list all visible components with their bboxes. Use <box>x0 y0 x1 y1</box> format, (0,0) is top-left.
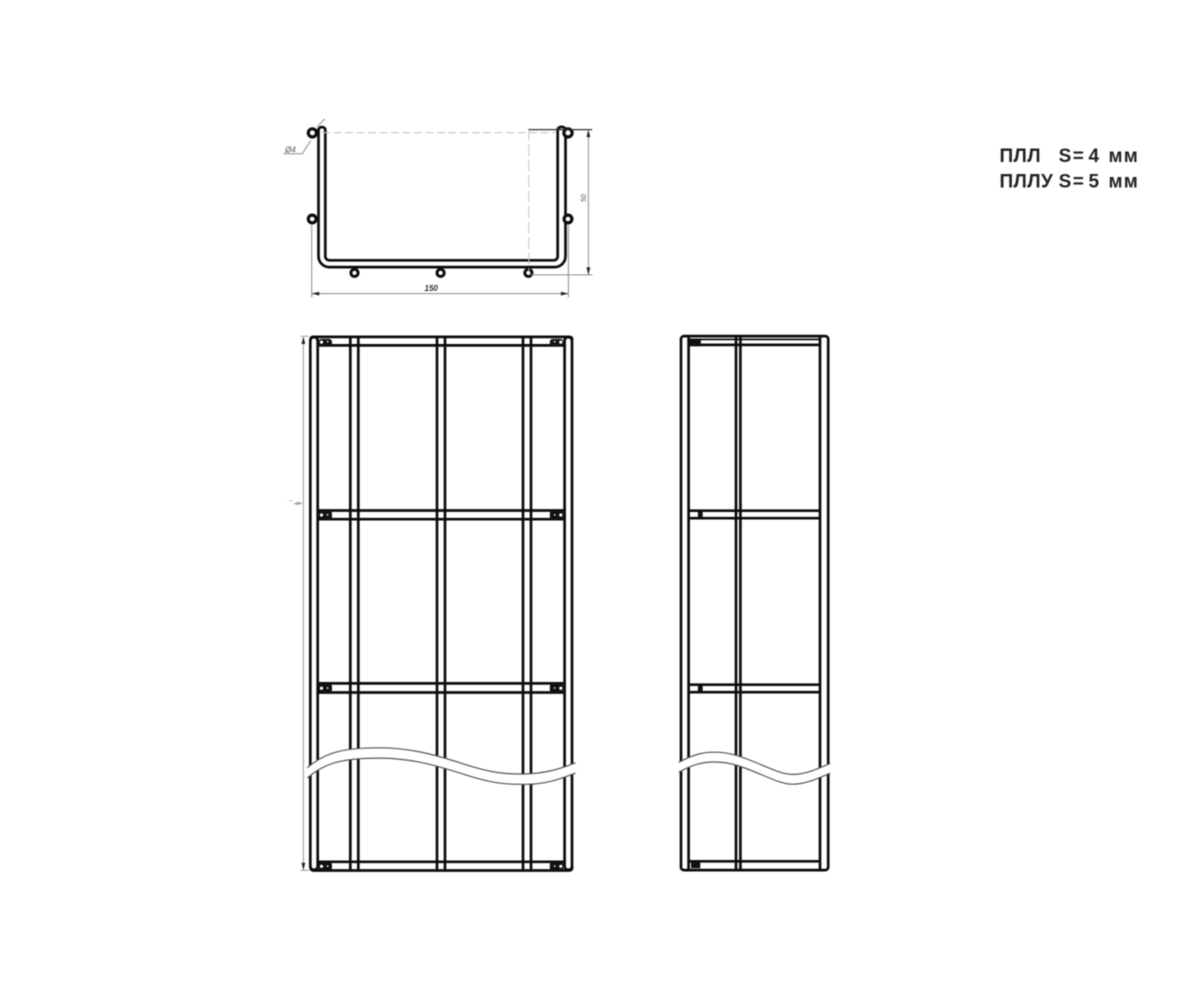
svg-text:5: 5 <box>1089 172 1100 193</box>
svg-text:мм: мм <box>1109 146 1140 167</box>
svg-text:S: S <box>1059 172 1072 193</box>
svg-text:S: S <box>1059 146 1072 167</box>
svg-text:Ø4: Ø4 <box>284 146 296 155</box>
svg-text:ПЛЛУ: ПЛЛУ <box>1000 172 1054 193</box>
svg-text:мм: мм <box>1109 172 1140 193</box>
svg-text:=: = <box>1073 172 1085 193</box>
svg-text:50: 50 <box>581 194 588 202</box>
svg-text:150: 150 <box>425 284 439 293</box>
svg-text:=: = <box>1073 146 1085 167</box>
svg-text:4: 4 <box>1089 146 1100 167</box>
svg-text:ПЛЛ: ПЛЛ <box>1000 146 1042 167</box>
svg-text:L: L <box>288 498 295 502</box>
